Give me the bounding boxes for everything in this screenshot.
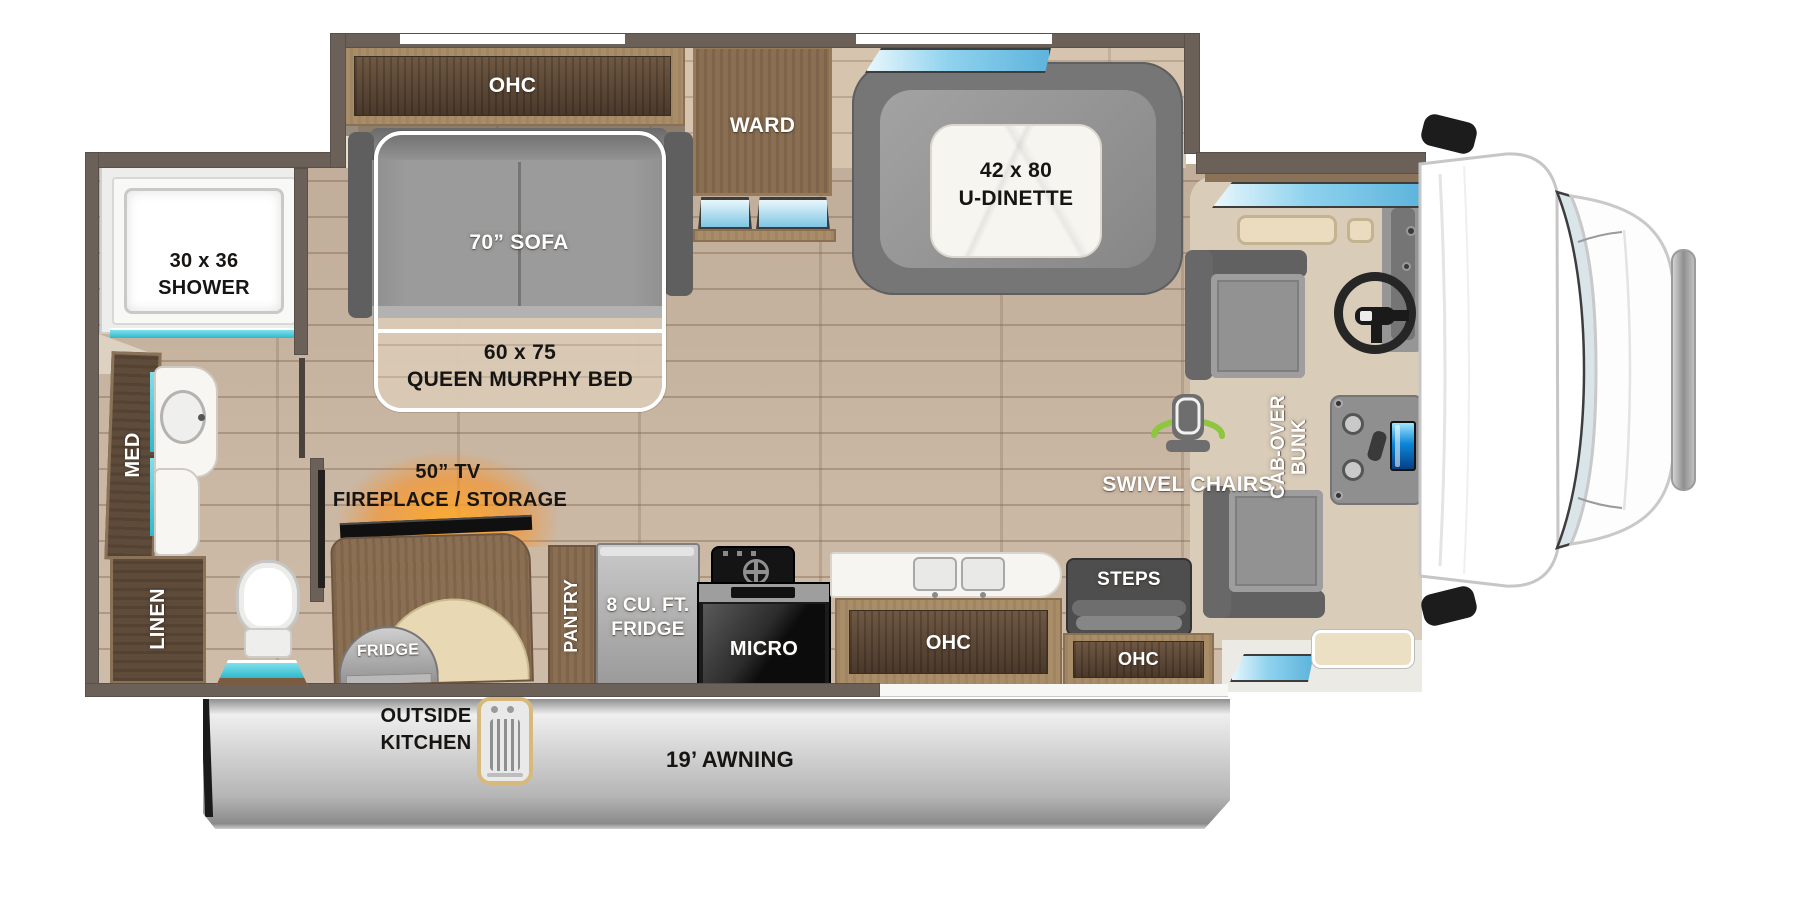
tv-label: 50” TV [348, 461, 548, 483]
top-window-trim [400, 34, 625, 44]
micro-label: MICRO [697, 638, 831, 660]
linen-label: LINEN [147, 559, 169, 679]
bath-pocket-door [299, 358, 305, 458]
swivel-icon [1148, 388, 1228, 468]
cooktop-knob-dots [723, 551, 763, 556]
bedroom-ohc-label: OHC [354, 74, 671, 97]
dinette-window-trim [856, 34, 1052, 44]
micro-top-band [699, 584, 829, 602]
wall-top-left [85, 152, 346, 168]
awning-label: 19’ AWNING [620, 748, 840, 772]
entry-door-step [1312, 630, 1414, 668]
cab-over-bunk-label: CAB-OVER BUNK [1269, 384, 1321, 510]
wall-tv-panel [318, 470, 325, 588]
dinette-label: U-DINETTE [930, 187, 1102, 210]
shower-label: SHOWER [124, 277, 284, 299]
cab-window-top-trim [1205, 174, 1422, 182]
wall-slide-left [330, 33, 346, 168]
outside-kitchen-label-2: KITCHEN [366, 732, 486, 754]
wall-bottom [85, 683, 880, 697]
wall-rear-left [85, 152, 99, 697]
bath-faucet-dot [198, 414, 205, 421]
fridge-size-label: 8 CU. FT. [596, 596, 700, 617]
ward-window-2 [756, 197, 830, 230]
ward-window-1 [698, 197, 752, 230]
sofa-armrest-left [348, 132, 374, 318]
toilet-seat [236, 560, 300, 634]
dinette-size-label: 42 x 80 [930, 159, 1102, 182]
murphy-size-label: 60 x 75 [374, 341, 666, 364]
dash-tray-right [1347, 218, 1374, 243]
fridge-label: FRIDGE [596, 620, 700, 641]
outside-fridge-label: FRIDGE [338, 641, 438, 661]
wall-slide-right [1184, 33, 1200, 154]
console-knob-1 [1342, 413, 1364, 435]
microwave [697, 582, 831, 688]
console-knob-2 [1342, 459, 1364, 481]
fireplace-label: FIREPLACE / STORAGE [310, 489, 590, 511]
pantry-label: PANTRY [562, 556, 582, 676]
med-label: MED [122, 395, 144, 515]
entry-ohc-label: OHC [1073, 650, 1204, 670]
outside-kitchen-label-1: OUTSIDE [366, 705, 486, 727]
steps-label: STEPS [1066, 570, 1192, 591]
murphy-bed-label: QUEEN MURPHY BED [374, 368, 666, 391]
cab-body [1408, 100, 1718, 640]
kitchen-sink-left [913, 557, 957, 591]
step-band-1 [1072, 600, 1186, 616]
grill-icon [477, 697, 533, 785]
entry-door-window [1230, 654, 1314, 682]
murphy-fold-line [378, 329, 662, 333]
ward-label: WARD [693, 114, 832, 137]
steering-wheel [1334, 272, 1416, 354]
sofa-armrest-right [664, 132, 693, 296]
kitchen-ohc-label: OHC [849, 632, 1048, 654]
shower-size-label: 30 x 36 [124, 250, 284, 272]
wall-bath-right-upper [294, 168, 308, 355]
awning-left-cap [201, 699, 213, 817]
swivel-chair-top [1185, 250, 1307, 380]
bottom-wall-window-gap [880, 684, 1228, 697]
shower-glass-strip [110, 328, 308, 338]
bath-bottom-window [216, 660, 308, 686]
fireplace-cabinet: FRIDGE [330, 532, 534, 686]
bath-counter-lower [154, 468, 200, 556]
wall-cab-top [1196, 152, 1426, 174]
toilet-base [244, 628, 292, 658]
console-lever [1366, 430, 1388, 463]
kitchen-sink-right [961, 557, 1005, 591]
step-band-2 [1076, 616, 1182, 630]
rv-floorplan-diagram: 30 x 36 SHOWER MED LINEN OHC 70” SOFA 60… [0, 0, 1800, 920]
ward-sill [693, 229, 836, 242]
dash-tray-left [1237, 215, 1337, 245]
fridge-top-trim [600, 547, 694, 556]
cab-window-top [1212, 182, 1422, 208]
dinette-window [865, 48, 1051, 73]
swivel-chairs-label: SWIVEL CHAIRS [1095, 473, 1280, 496]
